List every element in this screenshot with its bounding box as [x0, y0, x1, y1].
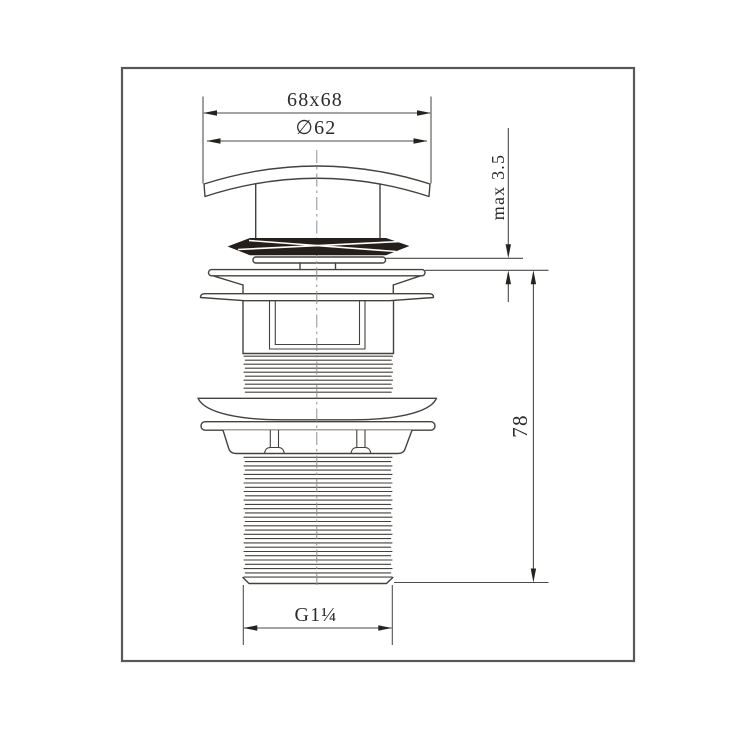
upper-thread — [244, 356, 393, 392]
cap-neck — [300, 263, 336, 270]
dim-label-thread-size: G1¼ — [294, 604, 337, 626]
technical-drawing: 68x68 ∅62 max 3.5 78 G1¼ — [0, 0, 750, 750]
overflow-body — [243, 301, 394, 354]
backnut — [223, 430, 412, 453]
washer-plate — [201, 422, 435, 431]
dimension-thread-size: G1¼ — [243, 585, 392, 645]
dim-label-cap-diameter: ∅62 — [295, 117, 336, 139]
dim-label-body-height: 78 — [508, 414, 532, 437]
lower-thread — [244, 457, 392, 577]
gasket-washer — [253, 257, 386, 263]
thread-chamfer — [243, 578, 393, 584]
cap-stem — [256, 183, 380, 240]
dim-label-top-width: 68x68 — [287, 89, 343, 111]
drawing-page: 68x68 ∅62 max 3.5 78 G1¼ — [0, 0, 750, 750]
dim-label-max-thickness: max 3.5 — [488, 154, 508, 220]
dimension-cap-diameter: ∅62 — [207, 117, 428, 144]
rubber-gasket — [229, 239, 408, 255]
